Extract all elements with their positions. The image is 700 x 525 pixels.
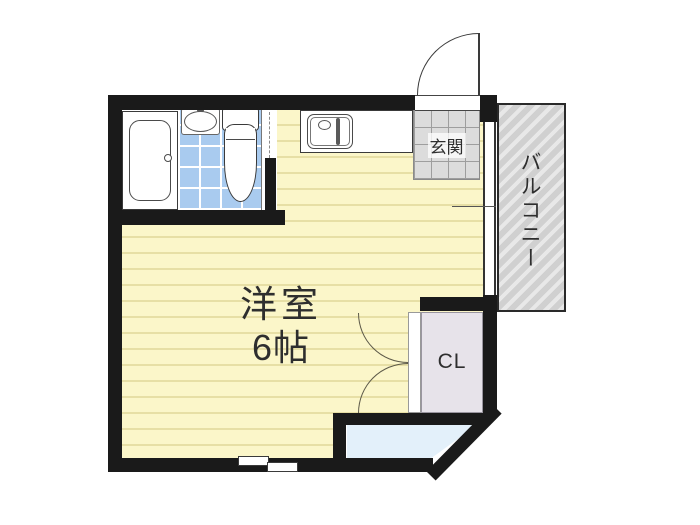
sliding-window-icon	[483, 122, 496, 295]
main-room-label-group: 洋室 6帖	[196, 276, 366, 376]
balcony-label-wrap: バルコニー	[512, 145, 546, 277]
main-room-size: 6帖	[252, 327, 310, 369]
main-room-label: 洋室	[240, 283, 322, 327]
wall-bathroom-bottom	[108, 210, 285, 225]
wall-closet-right	[483, 295, 497, 418]
washbasin-bowl	[184, 111, 217, 132]
entry-door-sill	[415, 95, 480, 111]
wall-entry-right	[480, 95, 497, 122]
wall-step-horizontal	[333, 413, 490, 425]
entry-door-arc-icon	[417, 33, 479, 95]
entrance-label: 玄関	[428, 133, 466, 158]
wall-step-vertical	[333, 413, 346, 470]
kitchen-faucet	[336, 118, 340, 145]
bathtub-handle	[164, 154, 172, 162]
closet-label-wrap: CL	[421, 344, 483, 380]
closet-label: CL	[438, 350, 467, 374]
window-center-tick	[452, 206, 496, 207]
bottom-window-pane-right	[267, 462, 298, 472]
kitchen-sink-drain	[318, 120, 331, 130]
toilet-seat-line	[226, 128, 255, 140]
wall-left	[108, 95, 122, 472]
balcony-label: バルコニー	[514, 151, 544, 271]
bathroom-door-icon	[269, 112, 270, 158]
floorplan: 洋室 6帖 玄関 CL バルコニー	[0, 0, 700, 525]
entrance-label-wrap: 玄関	[413, 132, 480, 158]
bottom-window-pane-left	[238, 456, 269, 466]
closet-door-track	[408, 312, 421, 413]
wall-bathroom-divider	[265, 158, 276, 210]
wall-top	[108, 95, 418, 110]
entry-door-leaf	[478, 33, 480, 95]
